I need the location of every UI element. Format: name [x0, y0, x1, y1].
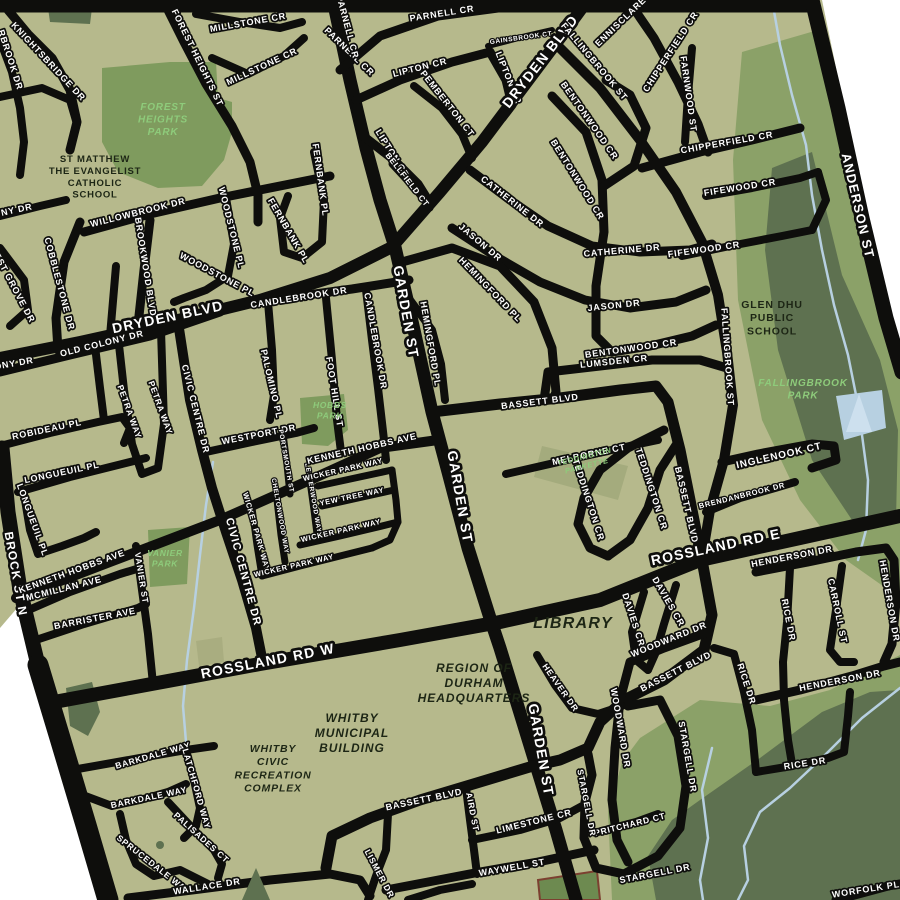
place-label-line: LIBRARY	[533, 615, 613, 632]
place-label-line: DURHAM	[444, 676, 503, 690]
place-label-whitby-municipal-building: WHITBYMUNICIPALBUILDING	[315, 711, 389, 755]
place-label-line: PUBLIC	[750, 312, 794, 324]
place-label-line: WHITBY	[325, 711, 378, 725]
place-label-line: FOREST	[140, 102, 185, 113]
place-label-library: LIBRARY	[533, 615, 613, 632]
place-label-line: COMPLEX	[244, 782, 302, 794]
place-label-line: HEIGHTS	[138, 115, 188, 126]
place-label-line: REGION OF	[436, 661, 512, 675]
place-label-line: ST MATTHEW	[60, 154, 130, 165]
place-label-line: BUILDING	[319, 741, 385, 755]
place-label-line: HOBBS	[313, 400, 347, 410]
place-label-line: FALLINGBROOK	[758, 378, 848, 389]
tree-dot-icon	[156, 841, 164, 849]
place-label-line: PARK	[152, 559, 178, 569]
place-label-line: CATHOLIC	[68, 178, 122, 189]
place-label-vanier-park: VANIERPARK	[147, 548, 183, 569]
place-label-line: RECREATION	[234, 769, 311, 781]
whitby-street-map: KNIGHTSBRIDGE DRRBROOK DRMILLSTONE CRMIL…	[0, 0, 900, 900]
place-label-line: GLEN DHU	[741, 299, 803, 311]
place-label-line: PARK	[317, 411, 343, 421]
map-canvas: KNIGHTSBRIDGE DRRBROOK DRMILLSTONE CRMIL…	[0, 0, 900, 900]
place-label-line: THE EVANGELIST	[49, 166, 141, 177]
place-label-line: VANIER	[147, 548, 183, 558]
place-label-glen-dhu-public-school: GLEN DHUPUBLICSCHOOL	[741, 299, 803, 337]
place-label-line: MUNICIPAL	[315, 726, 389, 740]
place-label-line: WHITBY	[250, 743, 297, 755]
place-label-line: PARK	[148, 127, 179, 138]
place-label-line: PARK	[788, 391, 819, 402]
place-label-line: SCHOOL	[72, 190, 117, 201]
place-label-line: CIVIC	[257, 756, 289, 768]
place-label-hobbs-park: HOBBSPARK	[313, 400, 347, 421]
place-label-line: HEADQUARTERS	[418, 691, 531, 705]
place-label-line: SCHOOL	[747, 325, 797, 337]
